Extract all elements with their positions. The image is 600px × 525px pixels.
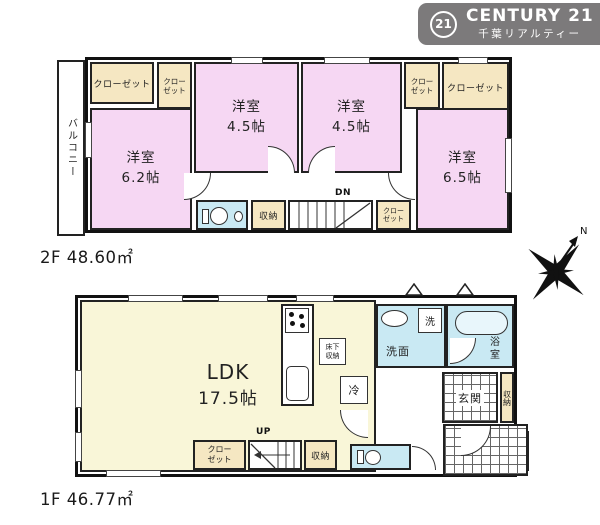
closet-label-line1: クロー: [163, 77, 186, 86]
stove-icon: [285, 308, 309, 333]
underfloor-storage: 床下 収納: [319, 338, 346, 365]
window-icon: [128, 295, 183, 302]
balcony-label: バルコニー: [64, 118, 79, 178]
window-icon: [231, 57, 263, 64]
toilet-bowl-icon: [210, 207, 228, 225]
century21-logo: 21 CENTURY 21 千葉リアルティー: [418, 3, 600, 45]
entrance-storage: 収納: [500, 372, 514, 423]
window-icon: [296, 295, 334, 302]
window-icon: [85, 122, 92, 158]
hand-basin-icon: [234, 211, 243, 222]
window-icon: [505, 138, 512, 193]
logo-text-block: CENTURY 21 千葉リアルティー: [466, 7, 594, 42]
underfloor-storage-line2: 収納: [326, 352, 340, 360]
closet-label-line2: ゼット: [383, 215, 404, 223]
room-name: 洋室: [122, 149, 161, 169]
closet-label-line2: ゼット: [411, 86, 434, 95]
closet-label-line1: クロー: [411, 77, 434, 86]
floorplan-page: 21 CENTURY 21 千葉リアルティー バルコニー クローゼット クロー …: [0, 0, 600, 525]
window-icon: [458, 57, 488, 64]
door-arc-bathroom: [450, 338, 476, 364]
bathroom: 浴 室: [446, 304, 514, 368]
stairs-2f: [288, 200, 373, 230]
kitchen-counter: [281, 304, 314, 406]
logo-subtitle: 千葉リアルティー: [466, 26, 594, 41]
toilet-tank-icon: [202, 209, 209, 224]
stairs-down-label: DN: [335, 188, 351, 198]
stairs-treads-icon: [290, 202, 371, 228]
room-name: 洋室: [227, 98, 266, 118]
window-icon: [75, 432, 82, 462]
closet-2f-topright: クローゼット: [442, 62, 509, 113]
entrance-porch: [443, 424, 528, 476]
vent-triangle-icon: [405, 283, 423, 296]
room-name: 洋室: [443, 149, 482, 169]
washroom: 洗 洗面: [376, 304, 446, 368]
vent-triangle-icon: [456, 283, 474, 296]
kitchen-sink-icon: [286, 366, 309, 401]
closet-label-line2: ゼット: [208, 455, 232, 465]
logo-brand: CENTURY 21: [466, 7, 594, 26]
closet-1f: クロー ゼット: [193, 440, 246, 470]
door-arc-front-door: [461, 426, 491, 456]
window-icon: [106, 470, 161, 477]
door-arc-room62: [184, 173, 211, 200]
entrance-genkan: 玄関: [442, 372, 498, 423]
compass-north-label: N: [580, 226, 587, 237]
bath-label-line1: 浴: [490, 337, 500, 350]
room-size: 6.5帖: [443, 169, 482, 189]
wash-basin-icon: [381, 310, 408, 327]
closet-label-line1: クロー: [383, 207, 404, 215]
floor2-area-label: 2F 48.60㎡: [40, 244, 133, 268]
room-size: 4.5帖: [227, 118, 266, 138]
closet-2f-topleft: クローゼット: [90, 62, 154, 104]
window-icon: [75, 370, 82, 408]
entrance-label: 玄関: [456, 390, 484, 406]
floor2-outline: クローゼット クロー ゼット 洋室 6.2帖 洋室 4.5帖 洋室 4.5帖: [85, 57, 512, 233]
century21-circle-icon: 21: [430, 11, 457, 38]
compass-rose-icon: N: [520, 222, 598, 306]
entrance-storage-label: 収納: [502, 390, 513, 406]
closet-2f-small-right: クロー ゼット: [404, 62, 440, 109]
room-youshitsu-6-2: 洋室 6.2帖: [90, 108, 192, 230]
floor1-area-label: 1F 46.77㎡: [40, 486, 133, 510]
bathtub-icon: [455, 311, 508, 335]
closet-label-line2: ゼット: [163, 86, 186, 95]
room-size: 6.2帖: [122, 169, 161, 189]
storage-2f: 収納: [251, 200, 286, 230]
storage-1f: 収納: [304, 440, 337, 470]
closet-label-line1: クロー: [208, 445, 232, 455]
balcony: バルコニー: [57, 60, 85, 236]
bath-label-line2: 室: [490, 350, 500, 363]
closet-2f-hall: クロー ゼット: [376, 200, 411, 230]
refrigerator: 冷: [340, 376, 368, 404]
toilet-room-2f: [196, 200, 248, 230]
bathroom-label: 浴 室: [488, 337, 502, 362]
toilet-room-1f: [350, 444, 411, 470]
stairs-treads-icon: [250, 442, 300, 468]
stairs-up-label: UP: [256, 427, 271, 437]
room-youshitsu-6-5: 洋室 6.5帖: [416, 108, 509, 230]
closet-label: クローゼット: [93, 77, 150, 90]
underfloor-storage-line1: 床下: [326, 343, 340, 351]
storage-label: 収納: [311, 449, 330, 462]
storage-label: 収納: [259, 209, 278, 222]
door-arc-room65: [388, 173, 415, 200]
washer-label: 洗: [425, 313, 435, 328]
fridge-label: 冷: [349, 382, 360, 398]
window-icon: [218, 295, 268, 302]
washroom-label: 洗面: [386, 343, 410, 359]
room-size: 4.5帖: [332, 118, 371, 138]
stairs-1f: [248, 440, 302, 470]
door-arc-toilet-1f: [412, 446, 436, 470]
closet-label: クローゼット: [447, 81, 504, 94]
washing-machine: 洗: [418, 308, 442, 333]
room-name: 洋室: [332, 98, 371, 118]
window-icon: [324, 57, 370, 64]
toilet-bowl-icon: [365, 450, 381, 465]
logo-circle-text: 21: [435, 17, 452, 31]
toilet-tank-icon: [357, 450, 364, 464]
closet-2f-small-left: クロー ゼット: [157, 62, 192, 109]
